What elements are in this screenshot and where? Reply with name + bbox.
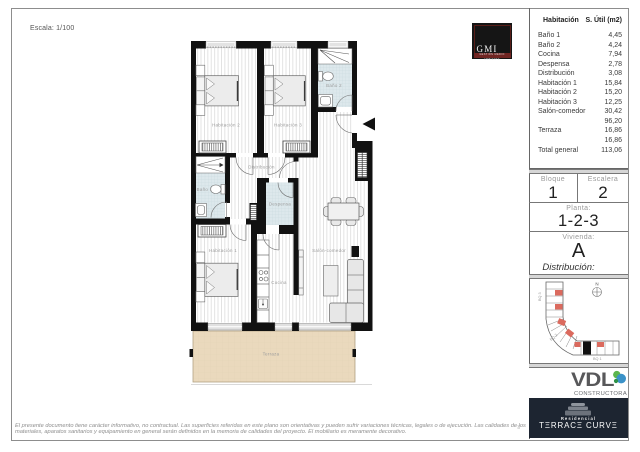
svg-text:Habitación 1: Habitación 1 (209, 248, 237, 253)
svg-text:BQ 3: BQ 3 (538, 292, 542, 301)
svg-text:BQ 1: BQ 1 (593, 357, 602, 361)
svg-text:Cocina: Cocina (271, 280, 287, 285)
svg-text:Baño 2: Baño 2 (326, 83, 342, 88)
svg-text:Terraza: Terraza (263, 352, 280, 357)
svg-text:Despensa: Despensa (269, 202, 291, 207)
svg-text:Distribución: Distribución (248, 165, 275, 170)
svg-text:N: N (595, 281, 598, 286)
svg-text:Habitación 3: Habitación 3 (274, 123, 302, 128)
svg-text:Baño 1: Baño 1 (197, 187, 213, 192)
svg-text:Salón-comedor: Salón-comedor (312, 248, 346, 253)
svg-text:Habitación 2: Habitación 2 (212, 123, 240, 128)
